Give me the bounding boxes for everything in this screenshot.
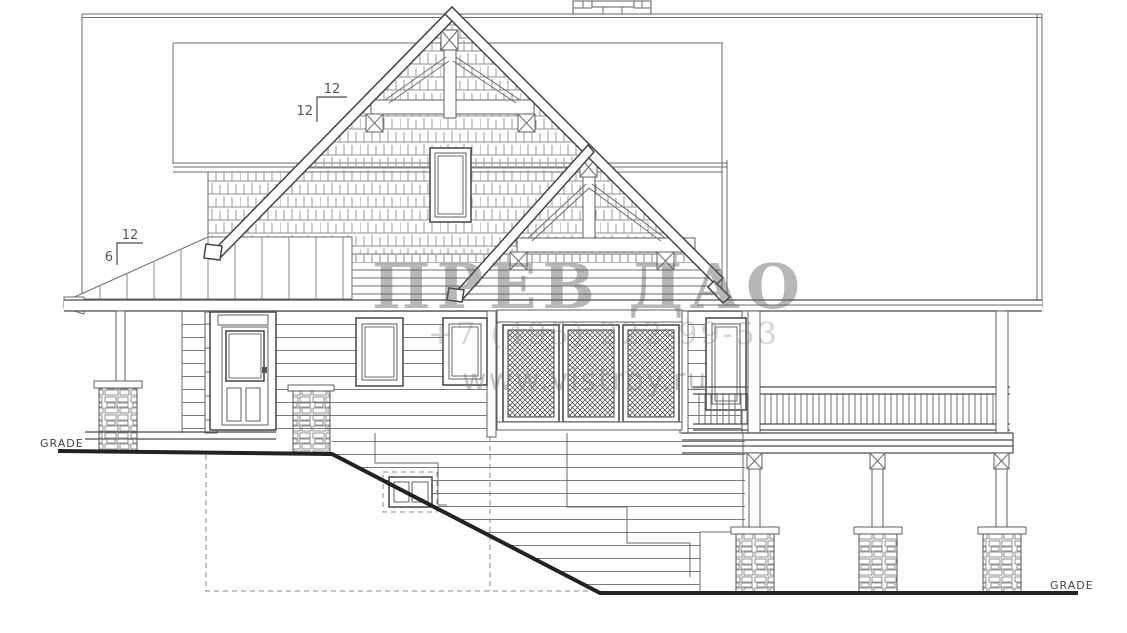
deck-support-posts <box>731 453 1026 592</box>
porch-post <box>996 311 1008 433</box>
door-glass <box>226 331 264 381</box>
pitch-run: 12 <box>122 228 139 243</box>
watermark-brand: ПРЕВ ДАО <box>372 250 806 323</box>
stone-pier <box>293 391 330 453</box>
railing-balusters <box>695 394 1010 424</box>
door-panel <box>227 388 241 421</box>
grade-label-right: GRADE <box>1050 579 1094 592</box>
entry-door <box>210 312 276 430</box>
king-post <box>444 48 456 118</box>
porch-post <box>116 311 125 381</box>
pier-cap <box>94 381 142 388</box>
support-post <box>854 453 902 592</box>
support-post <box>978 453 1026 592</box>
elevation-sheet: GRADE GRADE 12 12 12 6 ПРЕВ ДАО +7 (495)… <box>0 0 1127 633</box>
pitch-run: 12 <box>324 82 341 97</box>
pitch-annotation-porch: 12 6 <box>105 228 143 265</box>
window-left <box>356 318 403 386</box>
door-panel <box>246 388 260 421</box>
pitch-annotation-main: 12 12 <box>296 82 347 122</box>
lower-level-wall <box>332 433 745 591</box>
elevation-drawing: GRADE GRADE 12 12 12 6 ПРЕВ ДАО +7 (495)… <box>0 0 1127 633</box>
watermark-website: www.vistroy.ru <box>462 363 708 398</box>
stone-pier <box>99 388 137 451</box>
door-transom <box>218 315 268 325</box>
gable-window <box>430 148 471 222</box>
pitch-rise: 6 <box>105 250 113 265</box>
grade-label-left: GRADE <box>40 437 84 450</box>
door-knob <box>262 367 267 373</box>
chimney <box>573 1 651 14</box>
window-wall-sill <box>497 422 682 430</box>
pitch-rise: 12 <box>296 104 313 119</box>
pier-cap <box>288 385 334 391</box>
watermark-phone: +7 (495) 222-99-53 <box>428 317 780 352</box>
rafter-tail <box>204 244 222 260</box>
